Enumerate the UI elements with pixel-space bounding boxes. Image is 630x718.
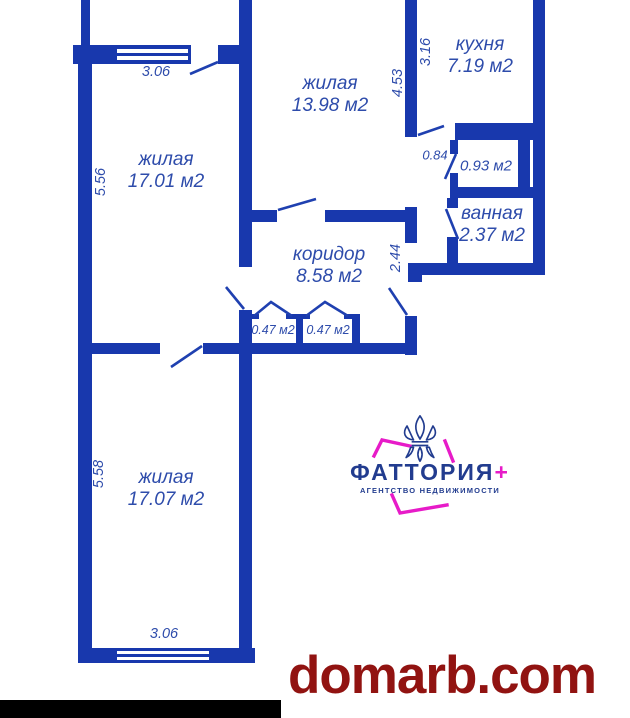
agency-name: ФАТТОРИЯ+ (335, 459, 525, 486)
window-glass (117, 651, 209, 654)
wall-segment (252, 314, 259, 319)
window-glass (117, 49, 188, 53)
dimension-label-corridor-height: 2.44 (388, 244, 404, 272)
dimension-label-room2-height: 4.53 (390, 69, 406, 97)
room-label-bathroom: ванная 2.37 м2 (459, 203, 525, 247)
wall-segment (203, 343, 417, 354)
wall-segment (239, 310, 252, 663)
wall-segment (296, 314, 303, 343)
wall-segment (344, 314, 352, 319)
watermark: domarb.com (288, 645, 596, 706)
room-area: 13.98 м2 (292, 95, 368, 117)
fleur-de-lis-icon (398, 414, 442, 464)
wall-segment (408, 263, 543, 275)
wall-segment (286, 314, 296, 319)
real-estate-floorplan-image: жилая 17.01 м2 жилая 13.98 м2 кухня 7.19… (0, 0, 630, 718)
wall-segment (450, 187, 543, 198)
wall-segment (352, 314, 360, 343)
room-name: жилая (128, 149, 204, 171)
room-name: ванная (459, 203, 525, 225)
room-name: жилая (128, 467, 204, 489)
wall-segment (518, 140, 530, 187)
room-area: 7.19 м2 (447, 56, 513, 78)
wall-segment (303, 314, 310, 319)
room-area: 2.37 м2 (459, 225, 525, 247)
room-label-closet-2: 0.47 м2 (306, 323, 349, 337)
room-label-closet-1: 0.47 м2 (251, 323, 294, 337)
wall-segment (447, 198, 458, 208)
room-area: 17.07 м2 (128, 489, 204, 511)
dimension-label-kitchen-door: 0.84 (422, 148, 447, 163)
wall-segment (450, 173, 458, 187)
room-label-living-1: жилая 17.01 м2 (128, 149, 204, 193)
wall-segment (239, 0, 252, 267)
room-name: коридор (293, 244, 365, 266)
wall-segment (447, 237, 458, 263)
dimension-label-top-width: 3.06 (142, 64, 170, 80)
wall-segment (78, 648, 118, 663)
agency-logo: ФАТТОРИЯ+ АГЕНТСТВО НЕДВИЖИМОСТИ (335, 410, 525, 530)
wall-segment (325, 210, 417, 222)
dimension-label-bottom-width: 3.06 (150, 626, 178, 642)
agency-name-plus: + (494, 459, 509, 485)
agency-subtitle: АГЕНТСТВО НЕДВИЖИМОСТИ (335, 486, 525, 495)
wall-segment (218, 45, 252, 64)
window (114, 45, 191, 64)
wall-segment (252, 210, 277, 222)
window-glass (117, 56, 188, 60)
bottom-bar (0, 700, 281, 718)
room-name: кухня (447, 34, 513, 56)
dimension-label-kitchen-height: 3.16 (418, 38, 434, 66)
dimension-label-room3-height: 5.58 (91, 460, 107, 488)
window-glass (117, 657, 209, 660)
room-name: жилая (292, 73, 368, 95)
wall-segment (450, 140, 458, 154)
room-area: 17.01 м2 (128, 171, 204, 193)
agency-name-text: ФАТТОРИЯ (350, 459, 494, 485)
room-label-corridor: коридор 8.58 м2 (293, 244, 365, 288)
wall-segment (78, 45, 92, 663)
wall-segment (455, 123, 543, 140)
room-label-living-3: жилая 17.07 м2 (128, 467, 204, 511)
room-label-living-2: жилая 13.98 м2 (292, 73, 368, 117)
room-label-storage: 0.93 м2 (460, 158, 512, 175)
room-label-kitchen: кухня 7.19 м2 (447, 34, 513, 78)
wall-segment (405, 0, 417, 137)
room-area: 8.58 м2 (293, 266, 365, 288)
wall-segment (78, 343, 160, 354)
wall-segment (210, 648, 255, 663)
dimension-label-room1-height: 5.56 (93, 168, 109, 196)
window (114, 648, 212, 663)
wall-segment (81, 0, 90, 47)
wall-segment (73, 45, 117, 64)
